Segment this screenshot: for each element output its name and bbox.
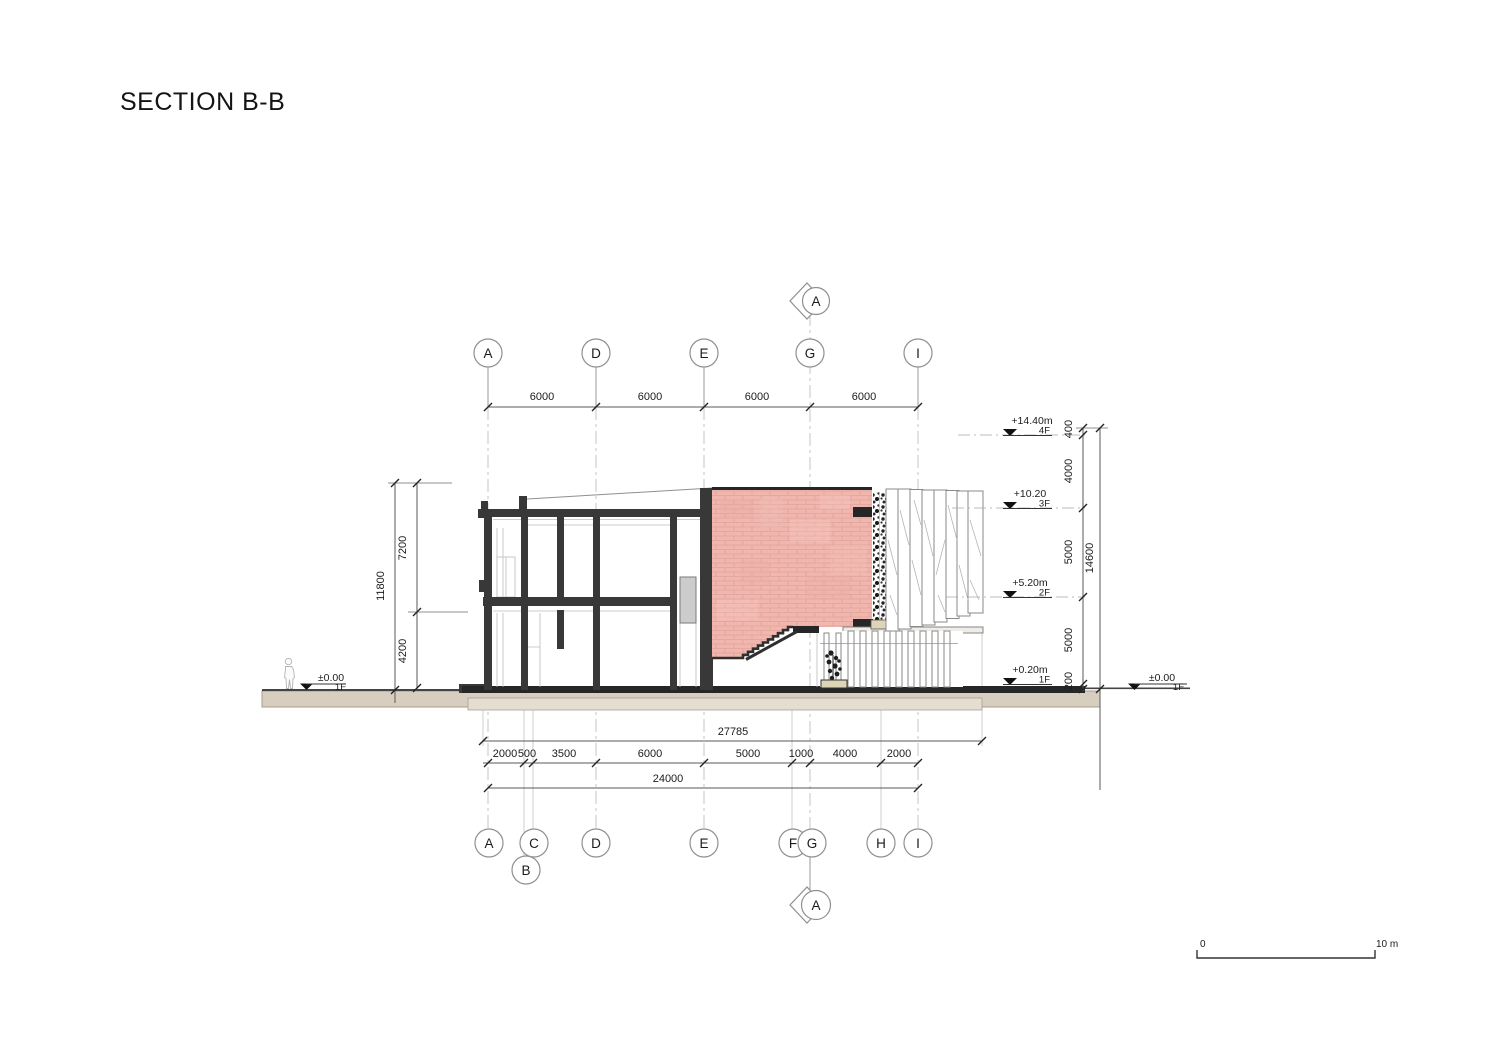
scale-bar-line <box>1197 950 1375 958</box>
level-floor: 2F <box>1039 588 1050 599</box>
level-floor: 1F <box>1173 682 1184 693</box>
ground-slab <box>462 686 1085 693</box>
section-drawing: SECTION B-B <box>0 0 1500 1060</box>
roof-slab <box>483 509 712 517</box>
bottom-dimensions: 27785 2000 500 3500 6000 5000 1000 4000 … <box>479 726 986 792</box>
top-grid-bubbles: A D E G I <box>474 339 932 367</box>
grid-label: F <box>789 836 797 851</box>
level-floor: 3F <box>1039 499 1050 510</box>
dim-value: 400 <box>1063 420 1075 438</box>
page-title: SECTION B-B <box>120 88 285 116</box>
level-elevation: ±0.00 <box>1149 672 1175 684</box>
dim-value: 5000 <box>1063 540 1075 564</box>
dim-value: 500 <box>518 748 536 760</box>
section-marker-label: A <box>811 898 820 913</box>
facade-fins-lower <box>820 631 963 687</box>
grid-label: B <box>521 863 530 878</box>
building-section <box>478 488 713 690</box>
elevator-door <box>680 577 696 623</box>
dim-value: 6000 <box>638 391 662 403</box>
dim-value: 24000 <box>653 773 684 785</box>
top-dimensions: 6000 6000 6000 6000 <box>484 391 922 411</box>
dim-value: 27785 <box>718 726 749 738</box>
dim-value: 6000 <box>745 391 769 403</box>
green-wall-planter <box>871 620 888 629</box>
section-marker-label: A <box>811 294 820 309</box>
grid-label: A <box>483 346 492 361</box>
foundation-strip <box>468 698 982 710</box>
facade-fins-upper <box>886 489 983 631</box>
dim-value: 11800 <box>375 571 387 601</box>
dim-value: 1000 <box>789 748 813 760</box>
drawing-sheet: SECTION B-B <box>0 0 1500 1060</box>
grid-label: H <box>876 836 886 851</box>
dim-value: 6000 <box>530 391 554 403</box>
scale-end-label: 10 m <box>1376 939 1398 950</box>
dim-value: 14600 <box>1084 543 1096 574</box>
grid-label: D <box>591 346 601 361</box>
dim-value: 4200 <box>397 639 409 663</box>
second-floor-slab <box>483 597 677 606</box>
section-marker-bottom: A <box>790 887 831 923</box>
hatch-top-edge <box>712 487 872 490</box>
grid-label: E <box>699 836 708 851</box>
grid-label: A <box>484 836 493 851</box>
left-dimensions: 11800 7200 4200 <box>375 479 468 703</box>
bottom-grid-bubbles: A C D E F G H I B <box>475 829 932 884</box>
dim-value: 7200 <box>397 536 409 560</box>
grid-label: G <box>805 346 816 361</box>
section-marker-top: A <box>790 283 830 319</box>
dim-value: 4000 <box>833 748 857 760</box>
grid-label: E <box>699 346 708 361</box>
grid-label: C <box>529 836 539 851</box>
scale-start-label: 0 <box>1200 939 1206 950</box>
level-floor: 4F <box>1039 426 1050 437</box>
elevator <box>680 577 696 687</box>
dim-value: 5000 <box>736 748 760 760</box>
dim-value: 200 <box>1063 672 1075 690</box>
green-wall <box>871 492 888 629</box>
grid-label: I <box>916 346 920 361</box>
columns <box>484 488 713 690</box>
dim-value: 2000 <box>887 748 911 760</box>
grid-label: D <box>591 836 601 851</box>
dim-value: 6000 <box>852 391 876 403</box>
grid-label: G <box>807 836 818 851</box>
dim-value: 6000 <box>638 748 662 760</box>
ground-marker-right: ±0.00 1F <box>1128 672 1187 693</box>
planter-box <box>821 680 847 688</box>
dim-value: 3500 <box>552 748 576 760</box>
scale-bar: 0 10 m <box>1197 939 1398 958</box>
ground <box>262 684 1190 710</box>
dim-value: 2000 <box>493 748 517 760</box>
ground-line-left <box>262 689 462 691</box>
level-floor: 1F <box>1039 675 1050 686</box>
roof-slope-line <box>519 488 712 500</box>
right-dimensions: 400 4000 5000 5000 200 14600 <box>1063 420 1108 790</box>
dim-value: 5000 <box>1063 628 1075 652</box>
level-floor: 1F <box>335 682 346 693</box>
dim-value: 4000 <box>1063 459 1075 483</box>
grid-label: I <box>916 836 920 851</box>
person-figure <box>285 658 295 688</box>
